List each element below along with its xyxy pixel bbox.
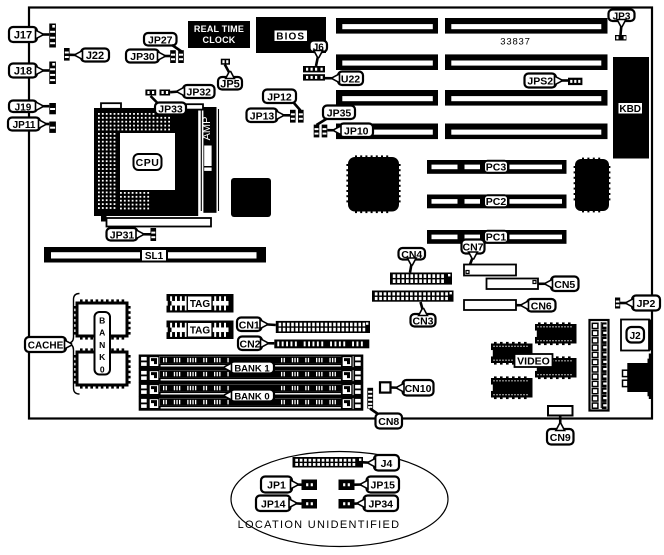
svg-text:JP12: JP12 [267, 91, 292, 103]
svg-text:LOCATION UNIDENTIFIED: LOCATION UNIDENTIFIED [238, 519, 401, 531]
svg-text:VIDEO: VIDEO [517, 355, 550, 367]
svg-text:0: 0 [100, 364, 105, 374]
svg-text:PC1: PC1 [486, 231, 507, 243]
svg-text:JP14: JP14 [261, 498, 286, 510]
svg-text:CN8: CN8 [378, 416, 399, 428]
svg-text:JP11: JP11 [13, 120, 36, 131]
svg-text:JP30: JP30 [130, 51, 155, 63]
svg-text:J22: J22 [86, 50, 104, 62]
svg-text:CN1: CN1 [239, 319, 260, 331]
svg-text:A: A [99, 328, 105, 338]
svg-text:B: B [99, 316, 105, 326]
svg-text:TAG: TAG [190, 326, 211, 337]
svg-text:JP27: JP27 [148, 34, 173, 46]
svg-text:J18: J18 [14, 66, 32, 78]
svg-text:K: K [99, 352, 106, 362]
svg-text:SL1: SL1 [145, 251, 164, 262]
svg-text:REAL TIME: REAL TIME [194, 24, 244, 34]
svg-text:BANK 1: BANK 1 [234, 364, 270, 375]
svg-text:CN5: CN5 [554, 279, 575, 291]
svg-text:J19: J19 [15, 102, 32, 113]
svg-text:JP13: JP13 [250, 110, 275, 122]
svg-text:J2: J2 [630, 331, 642, 342]
svg-text:JPS2: JPS2 [527, 76, 553, 88]
svg-text:AMP: AMP [201, 117, 213, 141]
svg-text:JP15: JP15 [370, 480, 395, 492]
svg-text:CN6: CN6 [531, 300, 552, 312]
svg-text:U22: U22 [341, 73, 360, 85]
svg-text:CN2: CN2 [239, 338, 260, 350]
svg-text:JP34: JP34 [368, 498, 393, 510]
svg-text:JP2: JP2 [637, 298, 656, 310]
svg-text:N: N [99, 340, 105, 350]
svg-text:JP5: JP5 [220, 78, 240, 90]
svg-text:JP32: JP32 [186, 87, 211, 99]
svg-text:PC2: PC2 [486, 196, 507, 208]
svg-text:TAG: TAG [190, 299, 211, 310]
svg-text:KBD: KBD [619, 104, 641, 115]
svg-text:33837: 33837 [500, 37, 530, 48]
svg-text:CLOCK: CLOCK [203, 35, 236, 45]
svg-text:J17: J17 [14, 30, 32, 42]
svg-text:CN3: CN3 [412, 315, 433, 327]
svg-text:CPU: CPU [136, 157, 160, 169]
svg-text:BANK 0: BANK 0 [234, 392, 269, 403]
svg-text:J4: J4 [381, 458, 393, 470]
svg-text:PC3: PC3 [486, 161, 507, 173]
svg-text:JP31: JP31 [110, 229, 135, 241]
svg-text:CN9: CN9 [550, 432, 571, 444]
svg-text:BIOS: BIOS [276, 31, 305, 42]
svg-text:CN10: CN10 [405, 383, 432, 395]
svg-text:CACHE: CACHE [28, 341, 64, 352]
svg-text:JP1: JP1 [267, 480, 286, 492]
svg-text:JP35: JP35 [327, 107, 352, 119]
svg-text:JP33: JP33 [158, 104, 183, 116]
svg-text:JP10: JP10 [344, 125, 369, 137]
